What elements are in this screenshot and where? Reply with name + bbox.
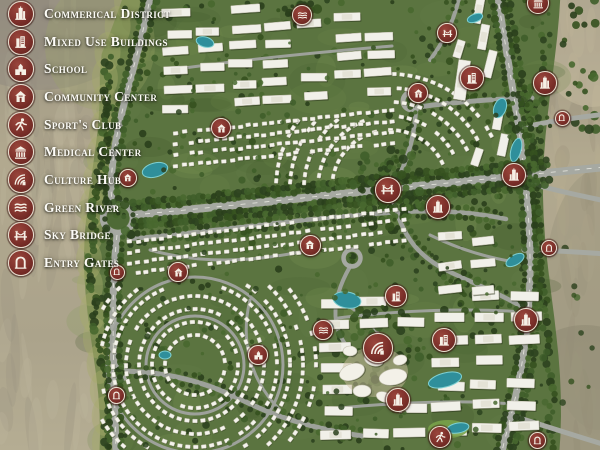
community-center-icon xyxy=(8,84,34,110)
map-marker-community-center[interactable] xyxy=(300,235,321,256)
map-marker-mixed-use[interactable] xyxy=(432,328,456,352)
map-legend: Commerical District Mixed Use Buildings … xyxy=(8,0,248,277)
mixed-use-buildings-icon xyxy=(8,29,34,55)
legend-item-entry-gates: Entry Gates xyxy=(8,249,248,277)
map-marker-mixed-use[interactable] xyxy=(460,66,484,90)
sky-bridge-icon xyxy=(8,222,34,248)
legend-item-sky-bridge: Sky Bridge xyxy=(8,222,248,250)
school-icon xyxy=(8,56,34,82)
legend-label: Commerical District xyxy=(44,6,171,22)
map-marker-commercial-district[interactable] xyxy=(514,308,538,332)
map-marker-school[interactable] xyxy=(248,345,268,365)
map-marker-sky-bridge[interactable] xyxy=(437,23,457,43)
map-marker-commercial-district[interactable] xyxy=(502,163,526,187)
map-marker-sky-bridge[interactable] xyxy=(375,177,401,203)
map-marker-green-river[interactable] xyxy=(313,320,333,340)
commercial-district-icon xyxy=(8,1,34,27)
medical-center-icon xyxy=(8,139,34,165)
legend-item-commercial-district: Commerical District xyxy=(8,0,248,28)
legend-label: Sport's Club xyxy=(44,117,121,133)
map-marker-entry-gates[interactable] xyxy=(541,240,557,256)
map-marker-culture-hub[interactable] xyxy=(363,333,393,363)
map-marker-mixed-use[interactable] xyxy=(385,285,407,307)
map-marker-entry-gates[interactable] xyxy=(529,432,546,449)
legend-label: Mixed Use Buildings xyxy=(44,34,168,50)
legend-item-medical-center: Medical Center xyxy=(8,138,248,166)
masterplan-map-viewport: Commerical District Mixed Use Buildings … xyxy=(0,0,600,450)
map-marker-green-river[interactable] xyxy=(292,5,312,25)
map-marker-commercial-district[interactable] xyxy=(386,388,410,412)
map-marker-commercial-district[interactable] xyxy=(533,71,557,95)
legend-item-school: School xyxy=(8,55,248,83)
map-marker-entry-gates[interactable] xyxy=(108,387,125,404)
legend-label: Green River xyxy=(44,200,120,216)
legend-item-mixed-use: Mixed Use Buildings xyxy=(8,28,248,56)
legend-item-culture-hub: Culture Hub xyxy=(8,166,248,194)
map-marker-entry-gates[interactable] xyxy=(555,111,570,126)
map-marker-sports-club[interactable] xyxy=(429,426,451,448)
legend-item-green-river: Green River xyxy=(8,194,248,222)
entry-gates-icon xyxy=(8,250,34,276)
legend-label: Culture Hub xyxy=(44,172,121,188)
sports-club-icon xyxy=(8,112,34,138)
legend-label: Community Center xyxy=(44,89,157,105)
legend-label: Entry Gates xyxy=(44,255,119,271)
legend-label: School xyxy=(44,61,87,77)
legend-item-sports-club: Sport's Club xyxy=(8,111,248,139)
map-marker-commercial-district[interactable] xyxy=(426,195,450,219)
map-marker-medical-center[interactable] xyxy=(527,0,549,14)
legend-label: Sky Bridge xyxy=(44,227,111,243)
culture-hub-icon xyxy=(8,167,34,193)
legend-label: Medical Center xyxy=(44,144,141,160)
green-river-icon xyxy=(8,195,34,221)
map-marker-community-center[interactable] xyxy=(408,83,428,103)
legend-item-community-center: Community Center xyxy=(8,83,248,111)
